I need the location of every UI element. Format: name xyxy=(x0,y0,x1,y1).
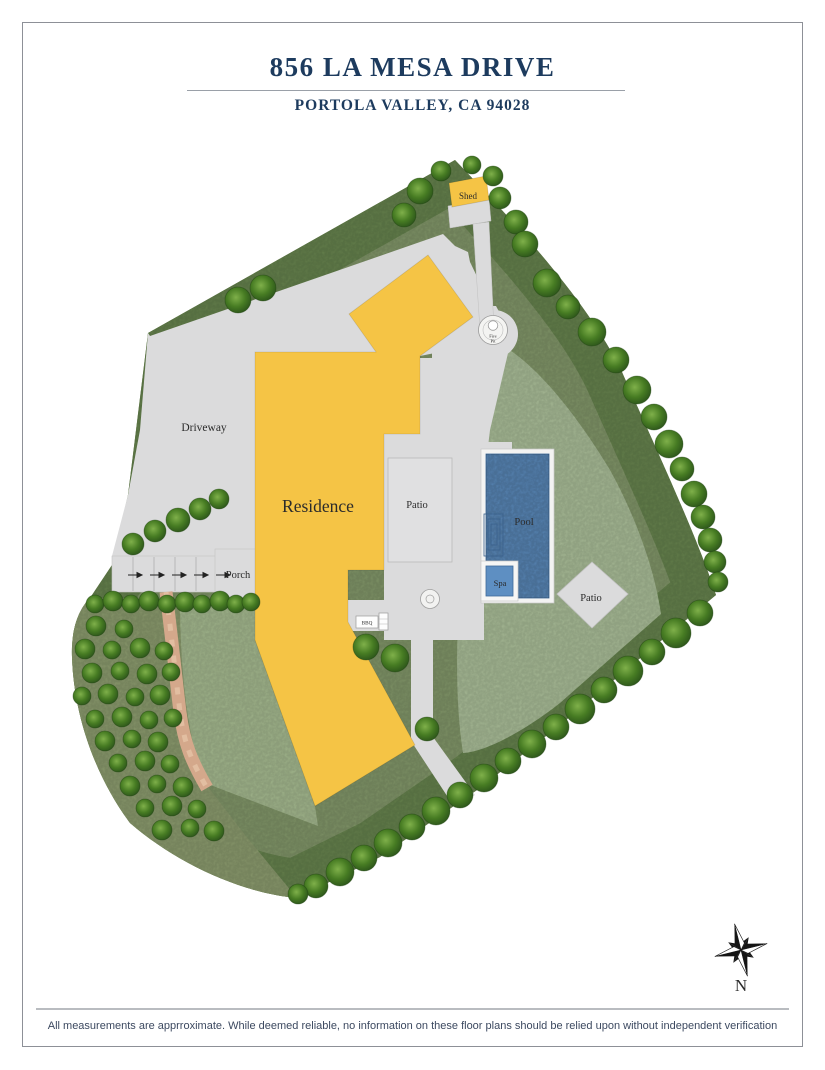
bbq-label: BBQ xyxy=(362,621,373,627)
tree-icon xyxy=(431,161,451,181)
site-plan: Fire Pit BBQ Driveway Residence Patio Po… xyxy=(0,0,825,1070)
tree-icon xyxy=(518,730,546,758)
tree-icon xyxy=(193,595,211,613)
tree-icon xyxy=(399,814,425,840)
tree-icon xyxy=(112,707,132,727)
tree-icon xyxy=(483,166,503,186)
tree-icon xyxy=(181,819,199,837)
tree-icon xyxy=(422,797,450,825)
tree-icon xyxy=(144,520,166,542)
tree-icon xyxy=(670,457,694,481)
tree-icon xyxy=(353,634,379,660)
tree-icon xyxy=(655,430,683,458)
tree-icon xyxy=(225,287,251,313)
tree-icon xyxy=(103,591,123,611)
tree-icon xyxy=(470,764,498,792)
tree-icon xyxy=(407,178,433,204)
tree-icon xyxy=(103,641,121,659)
tree-icon xyxy=(155,642,173,660)
fire-pit-icon: Fire Pit xyxy=(479,316,508,345)
tree-icon xyxy=(158,595,176,613)
residence-label: Residence xyxy=(282,496,354,516)
tree-icon xyxy=(164,709,182,727)
tree-icon xyxy=(148,775,166,793)
tree-icon xyxy=(86,595,104,613)
tree-icon xyxy=(95,731,115,751)
shed-label: Shed xyxy=(459,191,478,201)
tree-icon xyxy=(556,295,580,319)
spa-label: Spa xyxy=(494,578,507,588)
tree-icon xyxy=(86,710,104,728)
tree-icon xyxy=(591,677,617,703)
tree-icon xyxy=(111,662,129,680)
tree-icon xyxy=(130,638,150,658)
tree-icon xyxy=(137,664,157,684)
tree-icon xyxy=(489,187,511,209)
tree-icon xyxy=(115,620,133,638)
tree-icon xyxy=(139,591,159,611)
tree-icon xyxy=(148,732,168,752)
tree-icon xyxy=(681,481,707,507)
tree-icon xyxy=(73,687,91,705)
tree-icon xyxy=(123,730,141,748)
tree-icon xyxy=(326,858,354,886)
tree-icon xyxy=(136,799,154,817)
tree-icon xyxy=(708,572,728,592)
tree-icon xyxy=(687,600,713,626)
tree-icon xyxy=(140,711,158,729)
tree-icon xyxy=(135,751,155,771)
compass-north-label: N xyxy=(735,976,747,995)
tree-icon xyxy=(98,684,118,704)
compass-cardinal-points xyxy=(708,917,773,982)
footer-divider xyxy=(36,1008,789,1010)
tree-icon xyxy=(661,618,691,648)
pool-label: Pool xyxy=(514,517,533,528)
tree-icon xyxy=(250,275,276,301)
tree-icon xyxy=(150,685,170,705)
tree-icon xyxy=(189,498,211,520)
patio-table-icon xyxy=(421,590,440,609)
tree-icon xyxy=(166,508,190,532)
tree-icon xyxy=(495,748,521,774)
tree-icon xyxy=(86,616,106,636)
tree-icon xyxy=(209,489,229,509)
porch-label: Porch xyxy=(226,570,251,581)
tree-icon xyxy=(565,694,595,724)
fire-pit-label-2: Pit xyxy=(490,339,496,344)
tree-icon xyxy=(162,663,180,681)
tree-icon xyxy=(463,156,481,174)
tree-icon xyxy=(512,231,538,257)
tree-icon xyxy=(122,595,140,613)
tree-icon xyxy=(162,796,182,816)
tree-icon xyxy=(188,800,206,818)
compass-rose: N xyxy=(708,917,773,995)
driveway-label: Driveway xyxy=(181,422,227,434)
tree-icon xyxy=(691,505,715,529)
tree-icon xyxy=(126,688,144,706)
tree-icon xyxy=(75,639,95,659)
disclaimer-text: All measurements are apprroximate. While… xyxy=(0,1020,825,1032)
tree-icon xyxy=(704,551,726,573)
tree-icon xyxy=(504,210,528,234)
tree-icon xyxy=(210,591,230,611)
tree-icon xyxy=(175,592,195,612)
tree-icon xyxy=(641,404,667,430)
tree-icon xyxy=(161,755,179,773)
tree-icon xyxy=(381,644,409,672)
tree-icon xyxy=(374,829,402,857)
tree-icon xyxy=(447,782,473,808)
tree-icon xyxy=(152,820,172,840)
tree-icon xyxy=(351,845,377,871)
patio-southeast-label: Patio xyxy=(580,593,602,604)
tree-icon xyxy=(173,777,193,797)
tree-icon xyxy=(122,533,144,555)
tree-icon xyxy=(543,714,569,740)
tree-icon xyxy=(109,754,127,772)
tree-icon xyxy=(613,656,643,686)
tree-icon xyxy=(639,639,665,665)
tree-icon xyxy=(578,318,606,346)
tree-icon xyxy=(288,884,308,904)
tree-icon xyxy=(242,593,260,611)
page: 856 LA MESA DRIVE PORTOLA VALLEY, CA 940… xyxy=(0,0,825,1070)
tree-icon xyxy=(415,717,439,741)
tree-icon xyxy=(204,821,224,841)
pool-bench-left xyxy=(465,517,478,548)
tree-icon xyxy=(698,528,722,552)
tree-icon xyxy=(623,376,651,404)
tree-icon xyxy=(82,663,102,683)
tree-icon xyxy=(533,269,561,297)
tree-icon xyxy=(392,203,416,227)
tree-icon xyxy=(603,347,629,373)
tree-icon xyxy=(120,776,140,796)
patio-center-label: Patio xyxy=(406,500,428,511)
